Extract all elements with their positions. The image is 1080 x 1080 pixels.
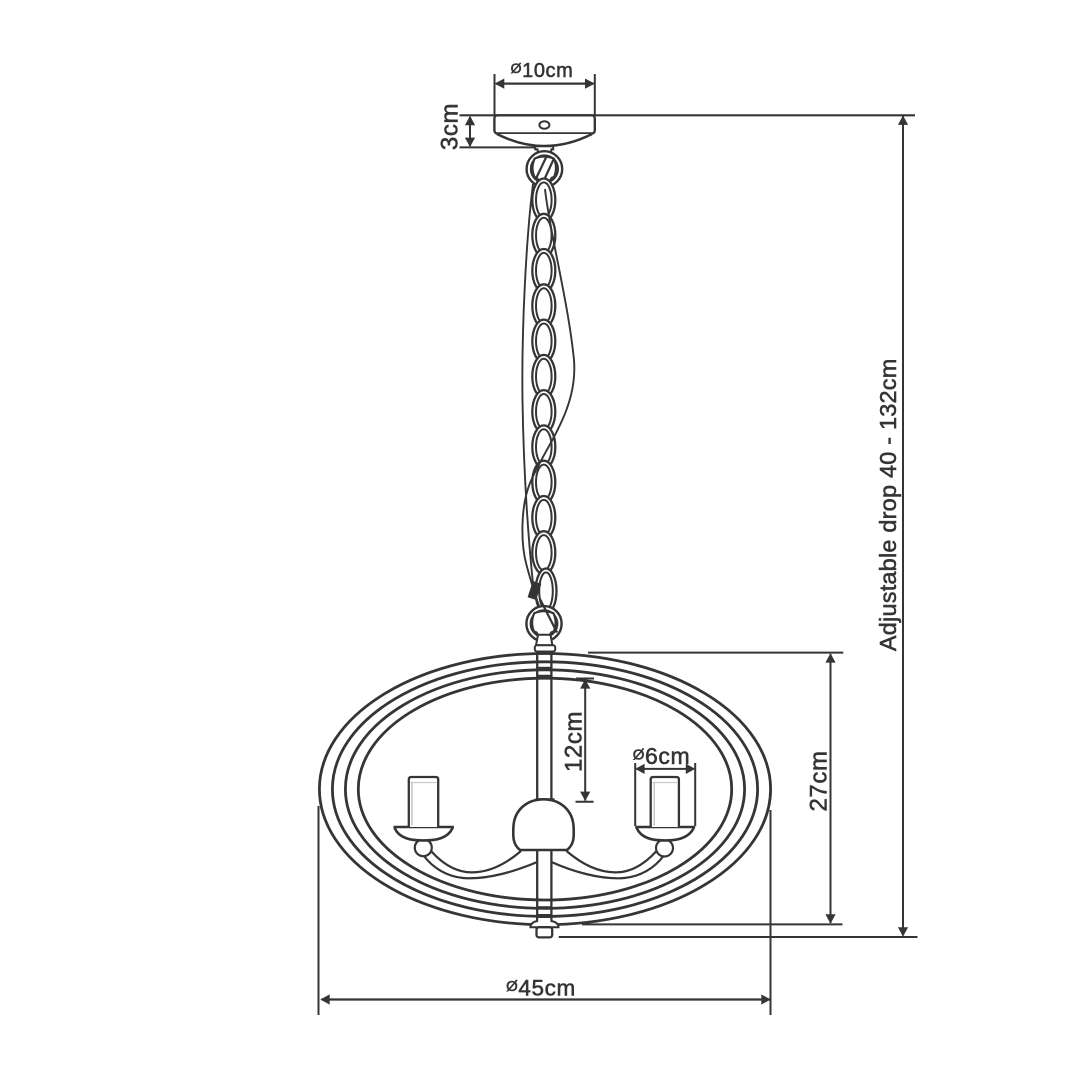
svg-text:27cm: 27cm <box>806 750 833 811</box>
svg-text:3cm: 3cm <box>437 103 464 150</box>
svg-text:Adjustable drop 40 - 132cm: Adjustable drop 40 - 132cm <box>875 359 901 652</box>
svg-text:12cm: 12cm <box>561 711 588 772</box>
